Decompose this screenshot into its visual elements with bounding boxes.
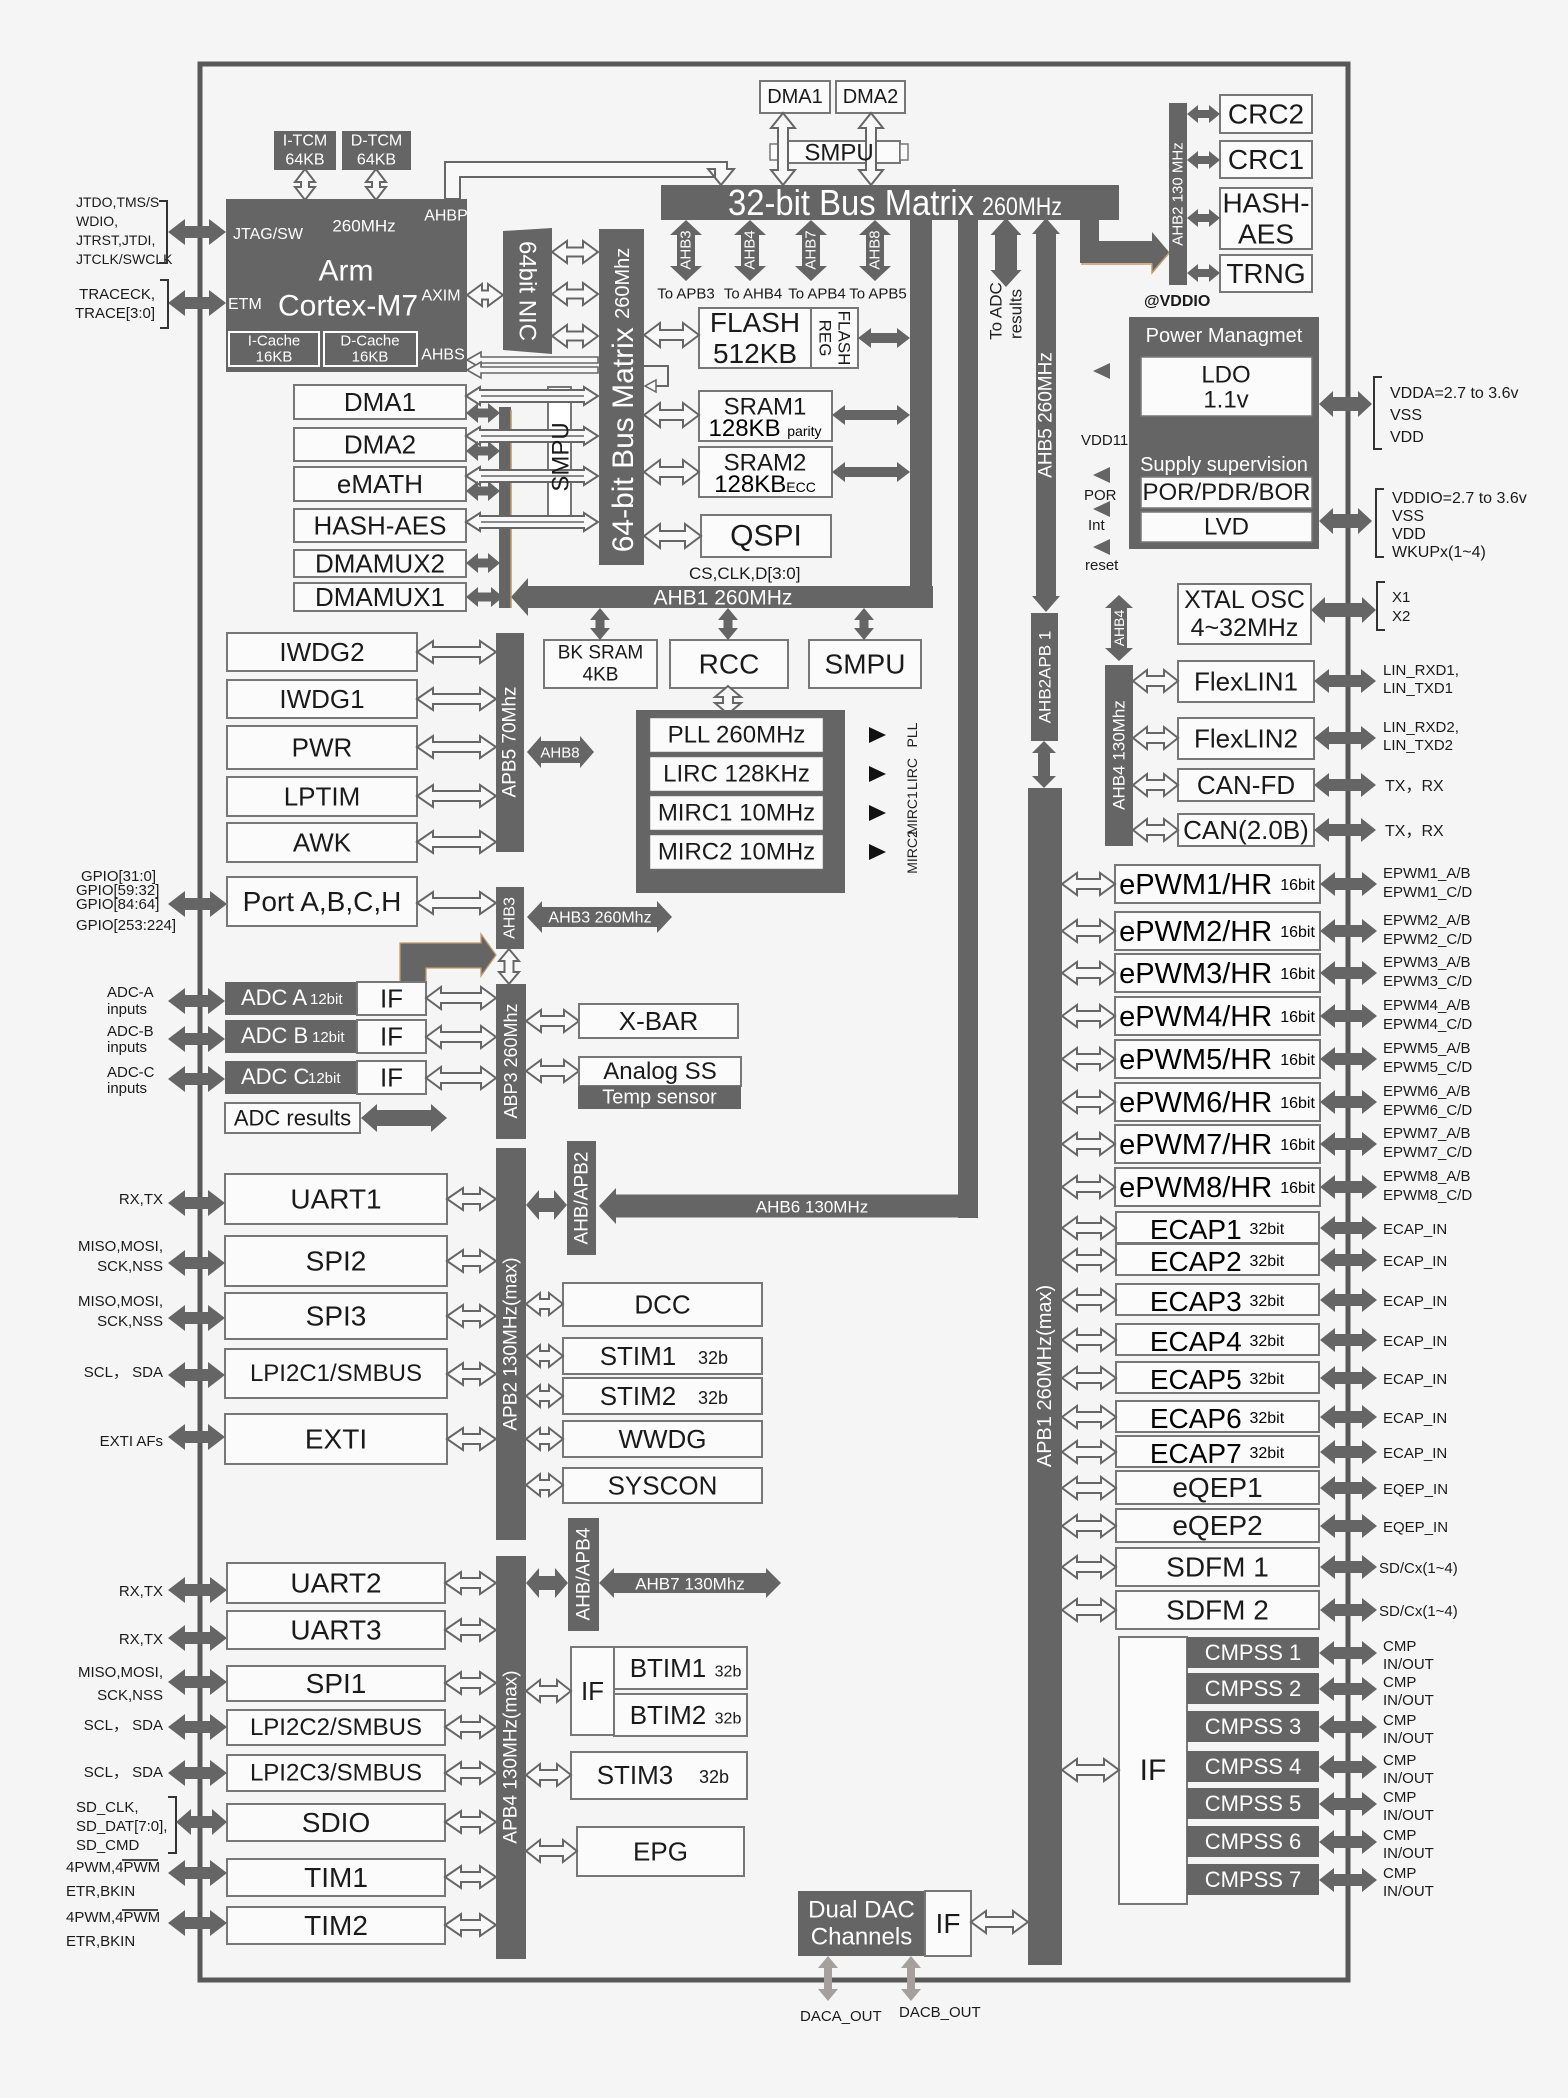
svg-text:VDDA=2.7 to 3.6v: VDDA=2.7 to 3.6v xyxy=(1390,385,1519,402)
svg-text:APB2 130MHz(max): APB2 130MHz(max) xyxy=(501,1257,522,1430)
svg-text:SD/Cx(1~4): SD/Cx(1~4) xyxy=(1379,1603,1458,1620)
svg-text:AHB4: AHB4 xyxy=(1111,610,1127,647)
svg-text:ABP3 260Mhz: ABP3 260Mhz xyxy=(501,1003,521,1118)
svg-text:CMP: CMP xyxy=(1383,1752,1416,1769)
svg-text:RX,TX: RX,TX xyxy=(119,1583,163,1600)
svg-text:QSPI: QSPI xyxy=(730,520,802,553)
svg-text:ETR,BKIN: ETR,BKIN xyxy=(66,1883,135,1900)
svg-text:LIN_RXD2,: LIN_RXD2, xyxy=(1383,719,1459,736)
svg-text:DMA2: DMA2 xyxy=(843,86,899,108)
svg-text:AXIM: AXIM xyxy=(421,288,460,305)
svg-text:AHB3: AHB3 xyxy=(502,897,519,939)
svg-text:STIM1: STIM1 xyxy=(600,1341,677,1371)
svg-text:AHB4 130Mhz: AHB4 130Mhz xyxy=(1110,700,1129,810)
svg-text:ADC C: ADC C xyxy=(241,1064,310,1089)
svg-text:CAN-FD: CAN-FD xyxy=(1197,770,1295,800)
svg-text:EPWM3_C/D: EPWM3_C/D xyxy=(1383,973,1472,990)
svg-text:IF: IF xyxy=(1140,1754,1167,1787)
svg-text:LPI2C1/SMBUS: LPI2C1/SMBUS xyxy=(250,1360,422,1387)
svg-text:TIM1: TIM1 xyxy=(304,1862,368,1893)
svg-text:1.1v: 1.1v xyxy=(1203,387,1248,414)
svg-text:AHB/APB2: AHB/APB2 xyxy=(572,1152,593,1245)
svg-text:SD_CLK,: SD_CLK, xyxy=(76,1799,139,1816)
svg-text:MISO,MOSI,: MISO,MOSI, xyxy=(78,1293,163,1310)
svg-text:GPIO[253:224]: GPIO[253:224] xyxy=(76,917,176,934)
svg-text:eQEP2: eQEP2 xyxy=(1172,1510,1262,1541)
svg-text:MIRC1: MIRC1 xyxy=(904,791,920,835)
svg-text:eMATH: eMATH xyxy=(337,469,423,499)
svg-text:12bit: 12bit xyxy=(310,991,343,1008)
svg-text:DMA1: DMA1 xyxy=(344,387,416,417)
svg-text:UART3: UART3 xyxy=(290,1615,381,1646)
svg-text:CMPSS 2: CMPSS 2 xyxy=(1205,1676,1302,1701)
svg-text:DMA2: DMA2 xyxy=(344,430,416,460)
svg-text:D-TCM: D-TCM xyxy=(351,133,403,150)
svg-text:WWDG: WWDG xyxy=(618,1424,706,1454)
svg-text:PLL 260MHz: PLL 260MHz xyxy=(668,722,806,749)
svg-text:APB1 260MHz(max): APB1 260MHz(max) xyxy=(1034,1285,1056,1467)
svg-text:AWK: AWK xyxy=(293,828,352,858)
svg-text:ECAP_IN: ECAP_IN xyxy=(1383,1293,1447,1310)
svg-text:STIM2: STIM2 xyxy=(600,1381,677,1411)
svg-text:SCL， SDA: SCL， SDA xyxy=(84,1364,163,1381)
svg-text:DMA1: DMA1 xyxy=(767,86,823,108)
svg-text:BK SRAM: BK SRAM xyxy=(558,643,644,664)
svg-text:@VDDIO: @VDDIO xyxy=(1144,293,1210,310)
svg-text:RCC: RCC xyxy=(699,649,760,680)
svg-text:CMPSS 4: CMPSS 4 xyxy=(1205,1754,1302,1779)
svg-text:To ADC: To ADC xyxy=(987,282,1006,340)
svg-text:VSS: VSS xyxy=(1390,407,1422,424)
svg-text:12bit: 12bit xyxy=(312,1029,345,1046)
svg-text:IF: IF xyxy=(380,984,403,1014)
svg-text:DACA_OUT: DACA_OUT xyxy=(800,2008,882,2025)
svg-text:AHB7: AHB7 xyxy=(803,230,820,269)
svg-text:EPWM3_A/B: EPWM3_A/B xyxy=(1383,954,1471,971)
svg-text:SCL， SDA: SCL， SDA xyxy=(84,1764,163,1781)
svg-text:SPI2: SPI2 xyxy=(306,1246,367,1277)
svg-text:BTIM2: BTIM2 xyxy=(630,1700,707,1730)
svg-text:4~32MHz: 4~32MHz xyxy=(1191,614,1299,642)
svg-text:DMAMUX2: DMAMUX2 xyxy=(315,549,445,579)
svg-text:TRACECK,: TRACECK, xyxy=(79,286,155,303)
svg-text:Analog SS: Analog SS xyxy=(603,1058,716,1085)
svg-text:SDFM 2: SDFM 2 xyxy=(1166,1595,1269,1626)
svg-text:EPWM4_A/B: EPWM4_A/B xyxy=(1383,997,1471,1014)
svg-text:SYSCON: SYSCON xyxy=(608,1471,718,1501)
svg-text:LVD: LVD xyxy=(1204,514,1249,541)
svg-text:64KB: 64KB xyxy=(285,152,324,169)
svg-text:ECAP_IN: ECAP_IN xyxy=(1383,1253,1447,1270)
svg-text:AHB2 130 MHz: AHB2 130 MHz xyxy=(1170,142,1187,245)
svg-text:CMPSS 3: CMPSS 3 xyxy=(1205,1714,1302,1739)
svg-text:TX，RX: TX，RX xyxy=(1385,823,1444,840)
svg-text:Supply supervision: Supply supervision xyxy=(1140,454,1308,476)
svg-text:4PWM,4PWM: 4PWM,4PWM xyxy=(66,1909,160,1926)
svg-text:APB4 130MHz(max): APB4 130MHz(max) xyxy=(501,1670,522,1843)
svg-text:APB5 70Mhz: APB5 70Mhz xyxy=(500,687,521,798)
svg-text:16KB: 16KB xyxy=(256,349,293,366)
svg-text:IN/OUT: IN/OUT xyxy=(1383,1770,1434,1787)
svg-text:CMP: CMP xyxy=(1383,1789,1416,1806)
svg-text:Temp sensor: Temp sensor xyxy=(602,1087,717,1109)
svg-text:CMP: CMP xyxy=(1383,1638,1416,1655)
svg-text:VDD11: VDD11 xyxy=(1081,432,1128,449)
svg-text:FLASH: FLASH xyxy=(710,307,800,338)
svg-text:CMP: CMP xyxy=(1383,1674,1416,1691)
svg-text:TX，RX: TX，RX xyxy=(1385,778,1444,795)
svg-text:To AHB4: To AHB4 xyxy=(724,286,782,303)
svg-text:SPI3: SPI3 xyxy=(306,1301,367,1332)
svg-text:CRC1: CRC1 xyxy=(1228,144,1304,175)
svg-text:DCC: DCC xyxy=(634,1290,690,1320)
svg-text:MISO,MOSI,: MISO,MOSI, xyxy=(78,1238,163,1255)
svg-text:LIN_TXD2: LIN_TXD2 xyxy=(1383,737,1453,754)
svg-text:IN/OUT: IN/OUT xyxy=(1383,1692,1434,1709)
svg-text:SCL， SDA: SCL， SDA xyxy=(84,1717,163,1734)
svg-text:MIRC2 10MHz: MIRC2 10MHz xyxy=(658,839,815,866)
svg-text:UART2: UART2 xyxy=(290,1568,381,1599)
svg-text:AHBP: AHBP xyxy=(424,208,468,225)
svg-text:Channels: Channels xyxy=(811,1924,912,1951)
svg-text:EPWM4_C/D: EPWM4_C/D xyxy=(1383,1016,1472,1033)
svg-text:UART1: UART1 xyxy=(290,1184,381,1215)
svg-text:EPWM2_C/D: EPWM2_C/D xyxy=(1383,931,1472,948)
svg-text:SMPU: SMPU xyxy=(804,140,873,167)
svg-text:I-TCM: I-TCM xyxy=(283,133,327,150)
svg-text:eQEP1: eQEP1 xyxy=(1172,1472,1262,1503)
svg-text:CMPSS 7: CMPSS 7 xyxy=(1205,1867,1302,1892)
svg-text:MIRC2: MIRC2 xyxy=(904,830,920,874)
svg-text:CMPSS 1: CMPSS 1 xyxy=(1205,1640,1302,1665)
svg-text:ADC-B: ADC-B xyxy=(107,1023,154,1040)
svg-text:SMPU: SMPU xyxy=(825,649,906,680)
svg-text:ETR,BKIN: ETR,BKIN xyxy=(66,1933,135,1950)
svg-text:I-Cache: I-Cache xyxy=(248,333,301,350)
svg-text:EPG: EPG xyxy=(633,1837,688,1867)
svg-text:IF: IF xyxy=(380,1063,403,1093)
svg-text:FlexLIN1: FlexLIN1 xyxy=(1194,667,1298,697)
svg-text:MISO,MOSI,: MISO,MOSI, xyxy=(78,1664,163,1681)
svg-text:AHB3 260Mhz: AHB3 260Mhz xyxy=(548,910,651,927)
svg-text:32b: 32b xyxy=(699,1767,729,1787)
svg-text:AHB6 130MHz: AHB6 130MHz xyxy=(756,1198,868,1217)
svg-text:POR: POR xyxy=(1084,487,1117,504)
svg-text:EXTI: EXTI xyxy=(305,1424,367,1455)
svg-text:Cortex-M7: Cortex-M7 xyxy=(278,290,418,323)
svg-text:VDD: VDD xyxy=(1390,429,1424,446)
svg-text:Dual DAC: Dual DAC xyxy=(808,1897,915,1924)
svg-text:POR/PDR/BOR: POR/PDR/BOR xyxy=(1142,479,1310,506)
svg-text:MIRC1 10MHz: MIRC1 10MHz xyxy=(658,800,815,827)
svg-text:EPWM1_C/D: EPWM1_C/D xyxy=(1383,884,1472,901)
svg-text:JTAG/SW: JTAG/SW xyxy=(233,226,304,243)
svg-text:IWDG1: IWDG1 xyxy=(279,684,364,714)
svg-text:ECAP_IN: ECAP_IN xyxy=(1383,1445,1447,1462)
svg-text:IF: IF xyxy=(380,1022,403,1052)
svg-text:AES: AES xyxy=(1238,219,1294,250)
svg-text:ECAP_IN: ECAP_IN xyxy=(1383,1333,1447,1350)
svg-text:LDO: LDO xyxy=(1201,362,1250,389)
svg-text:64KB: 64KB xyxy=(357,152,396,169)
svg-text:IN/OUT: IN/OUT xyxy=(1383,1656,1434,1673)
svg-text:32b: 32b xyxy=(698,1348,728,1368)
svg-text:4KB: 4KB xyxy=(583,665,619,686)
svg-text:LIN_RXD1,: LIN_RXD1, xyxy=(1383,662,1459,679)
svg-text:EQEP_IN: EQEP_IN xyxy=(1383,1481,1448,1498)
svg-text:JTRST,JTDI,: JTRST,JTDI, xyxy=(76,232,155,248)
svg-text:To APB3: To APB3 xyxy=(657,286,715,303)
svg-text:IN/OUT: IN/OUT xyxy=(1383,1845,1434,1862)
svg-text:TRACE[3:0]: TRACE[3:0] xyxy=(75,305,155,322)
svg-text:ADC-A: ADC-A xyxy=(107,984,154,1001)
svg-text:DMAMUX1: DMAMUX1 xyxy=(315,582,445,612)
svg-text:JTDO,TMS/S: JTDO,TMS/S xyxy=(76,194,159,210)
svg-text:4PWM,4PWM: 4PWM,4PWM xyxy=(66,1859,160,1876)
svg-text:DACB_OUT: DACB_OUT xyxy=(899,2004,981,2021)
svg-text:TIM2: TIM2 xyxy=(304,1910,368,1941)
svg-text:X2: X2 xyxy=(1392,608,1410,625)
svg-text:PWR: PWR xyxy=(292,733,353,763)
svg-text:EPWM7_C/D: EPWM7_C/D xyxy=(1383,1144,1472,1161)
svg-text:AHB4: AHB4 xyxy=(742,230,759,269)
svg-text:Power Managmet: Power Managmet xyxy=(1146,325,1303,347)
svg-text:LPTIM: LPTIM xyxy=(284,782,361,812)
svg-text:64bit NIC: 64bit NIC xyxy=(514,241,541,341)
svg-text:SMPU: SMPU xyxy=(548,422,575,491)
svg-text:LIN_TXD1: LIN_TXD1 xyxy=(1383,680,1453,697)
svg-text:IN/OUT: IN/OUT xyxy=(1383,1883,1434,1900)
svg-text:IN/OUT: IN/OUT xyxy=(1383,1807,1434,1824)
svg-text:AHB1 260MHz: AHB1 260MHz xyxy=(654,587,793,610)
svg-text:CAN(2.0B): CAN(2.0B) xyxy=(1183,815,1309,845)
svg-text:EPWM2_A/B: EPWM2_A/B xyxy=(1383,912,1471,929)
svg-text:16KB: 16KB xyxy=(352,349,389,366)
svg-text:reset: reset xyxy=(1085,557,1119,574)
svg-text:SPI1: SPI1 xyxy=(306,1668,367,1699)
svg-text:VDDIO=2.7 to 3.6v: VDDIO=2.7 to 3.6v xyxy=(1392,490,1527,507)
svg-text:AHB3: AHB3 xyxy=(678,230,695,269)
svg-text:TRNG: TRNG xyxy=(1226,258,1305,289)
svg-text:EPWM6_C/D: EPWM6_C/D xyxy=(1383,1102,1472,1119)
svg-text:LPI2C2/SMBUS: LPI2C2/SMBUS xyxy=(250,1714,422,1741)
svg-text:32b: 32b xyxy=(715,1711,742,1728)
svg-text:AHBS: AHBS xyxy=(421,347,465,364)
svg-text:Int: Int xyxy=(1088,517,1106,534)
svg-text:RX,TX: RX,TX xyxy=(119,1631,163,1648)
svg-text:IWDG2: IWDG2 xyxy=(279,637,364,667)
svg-text:EXTI AFs: EXTI AFs xyxy=(100,1433,163,1450)
svg-text:PLL: PLL xyxy=(904,722,920,747)
svg-text:SD_CMD: SD_CMD xyxy=(76,1837,140,1854)
svg-text:Port A,B,C,H: Port A,B,C,H xyxy=(243,886,402,917)
svg-text:ECAP_IN: ECAP_IN xyxy=(1383,1221,1447,1238)
svg-text:RX,TX: RX,TX xyxy=(119,1191,163,1208)
svg-text:VDD: VDD xyxy=(1392,526,1426,543)
svg-text:JTCLK/SWCLK: JTCLK/SWCLK xyxy=(76,251,173,267)
svg-text:FLASH: FLASH xyxy=(835,311,854,366)
svg-text:To APB5: To APB5 xyxy=(849,286,907,303)
svg-text:LIRC: LIRC xyxy=(904,758,920,790)
svg-text:ADC B: ADC B xyxy=(241,1023,308,1048)
svg-text:CMP: CMP xyxy=(1383,1712,1416,1729)
svg-text:LIRC 128KHz: LIRC 128KHz xyxy=(663,761,810,788)
svg-text:EPWM5_A/B: EPWM5_A/B xyxy=(1383,1040,1471,1057)
svg-text:inputs: inputs xyxy=(107,1001,147,1018)
svg-text:SCK,NSS: SCK,NSS xyxy=(97,1313,163,1330)
svg-text:CRC2: CRC2 xyxy=(1228,99,1304,130)
svg-text:ADC-C: ADC-C xyxy=(107,1064,155,1081)
svg-text:X1: X1 xyxy=(1392,589,1410,606)
svg-text:32b: 32b xyxy=(715,1664,742,1681)
svg-text:EPWM8_C/D: EPWM8_C/D xyxy=(1383,1187,1472,1204)
svg-text:SCK,NSS: SCK,NSS xyxy=(97,1258,163,1275)
svg-text:inputs: inputs xyxy=(107,1080,147,1097)
svg-text:EPWM8_A/B: EPWM8_A/B xyxy=(1383,1168,1471,1185)
svg-text:WDIO,: WDIO, xyxy=(76,213,118,229)
svg-text:X-BAR: X-BAR xyxy=(619,1006,698,1036)
svg-text:To APB4: To APB4 xyxy=(788,286,846,303)
svg-text:SDFM 1: SDFM 1 xyxy=(1166,1552,1269,1583)
svg-text:EPWM1_A/B: EPWM1_A/B xyxy=(1383,865,1471,882)
svg-text:IF: IF xyxy=(936,1908,961,1939)
svg-text:AHB8: AHB8 xyxy=(540,745,579,762)
svg-text:HASH-: HASH- xyxy=(1222,188,1309,219)
svg-text:SD_DAT[7:0],: SD_DAT[7:0], xyxy=(76,1818,167,1835)
svg-text:CMP: CMP xyxy=(1383,1827,1416,1844)
svg-text:AHB5 260MHz: AHB5 260MHz xyxy=(1036,352,1057,478)
svg-text:SCK,NSS: SCK,NSS xyxy=(97,1687,163,1704)
svg-text:ADC results: ADC results xyxy=(234,1106,351,1131)
svg-text:BTIM1: BTIM1 xyxy=(630,1653,707,1683)
svg-text:ADC A: ADC A xyxy=(241,985,307,1010)
svg-text:VSS: VSS xyxy=(1392,508,1424,525)
svg-text:AHB7 130Mhz: AHB7 130Mhz xyxy=(635,1575,745,1594)
svg-text:CMPSS 6: CMPSS 6 xyxy=(1205,1829,1302,1854)
svg-text:ECAP_IN: ECAP_IN xyxy=(1383,1371,1447,1388)
svg-text:STIM3: STIM3 xyxy=(597,1760,674,1790)
svg-text:AHB2APB 1: AHB2APB 1 xyxy=(1036,631,1055,724)
svg-text:CMPSS 5: CMPSS 5 xyxy=(1205,1791,1302,1816)
svg-text:HASH-AES: HASH-AES xyxy=(314,511,447,541)
svg-text:WKUPx(1~4): WKUPx(1~4) xyxy=(1392,544,1486,561)
svg-text:results: results xyxy=(1007,289,1026,339)
svg-text:CS,CLK,D[3:0]: CS,CLK,D[3:0] xyxy=(689,564,801,583)
svg-text:REG: REG xyxy=(816,320,835,357)
svg-text:EPWM6_A/B: EPWM6_A/B xyxy=(1383,1083,1471,1100)
svg-text:12bit: 12bit xyxy=(308,1070,341,1087)
svg-text:LPI2C3/SMBUS: LPI2C3/SMBUS xyxy=(250,1760,422,1787)
svg-text:Arm: Arm xyxy=(319,255,374,288)
svg-text:inputs: inputs xyxy=(107,1039,147,1056)
svg-text:D-Cache: D-Cache xyxy=(340,333,399,350)
svg-text:FlexLIN2: FlexLIN2 xyxy=(1194,724,1298,754)
svg-text:SD/Cx(1~4): SD/Cx(1~4) xyxy=(1379,1560,1458,1577)
svg-text:CMP: CMP xyxy=(1383,1865,1416,1882)
svg-text:SDIO: SDIO xyxy=(302,1807,370,1838)
svg-text:512KB: 512KB xyxy=(713,338,797,369)
svg-text:IN/OUT: IN/OUT xyxy=(1383,1730,1434,1747)
svg-text:EQEP_IN: EQEP_IN xyxy=(1383,1519,1448,1536)
svg-text:EPWM5_C/D: EPWM5_C/D xyxy=(1383,1059,1472,1076)
svg-text:AHB/APB4: AHB/APB4 xyxy=(574,1527,595,1620)
svg-text:ECAP_IN: ECAP_IN xyxy=(1383,1410,1447,1427)
svg-text:IF: IF xyxy=(581,1676,604,1706)
svg-text:260MHz: 260MHz xyxy=(332,217,395,236)
svg-text:32b: 32b xyxy=(698,1388,728,1408)
svg-text:ETM: ETM xyxy=(228,296,262,313)
svg-text:GPIO[84:64]: GPIO[84:64] xyxy=(76,896,159,913)
svg-text:XTAL OSC: XTAL OSC xyxy=(1184,586,1305,614)
svg-text:EPWM7_A/B: EPWM7_A/B xyxy=(1383,1125,1471,1142)
svg-text:AHB8: AHB8 xyxy=(867,230,884,269)
